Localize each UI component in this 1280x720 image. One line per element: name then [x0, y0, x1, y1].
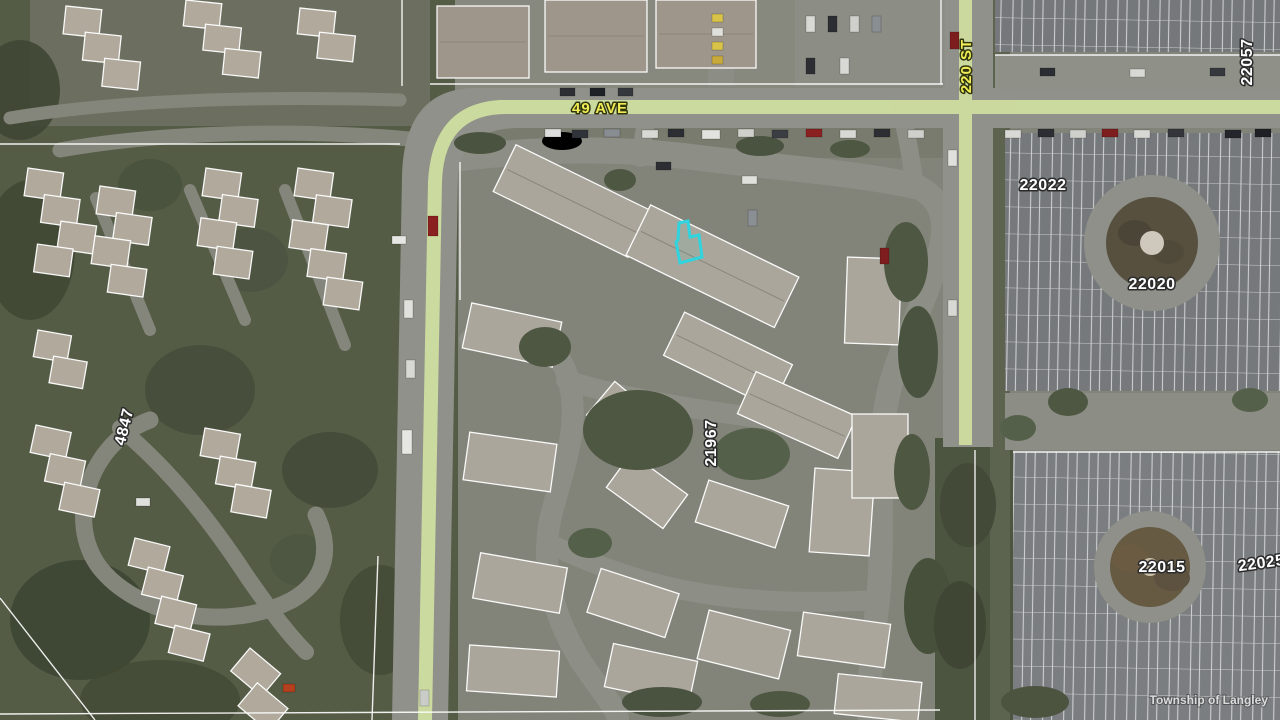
parcel-label-21967: 21967 [703, 420, 720, 467]
north-houses-layer [437, 0, 756, 78]
aerial-map-canvas[interactable]: 49 AVE 220 ST 22057 22022 22020 21967 48… [0, 0, 1280, 720]
parcel-label-22022: 22022 [1020, 177, 1067, 194]
parcel-label-22015: 22015 [1139, 559, 1186, 576]
parcel-label-22057: 22057 [1239, 39, 1256, 86]
street-label-49-ave: 49 AVE [572, 100, 628, 117]
street-label-220-st: 220 ST [958, 39, 975, 93]
aerial-map-viewport[interactable]: 49 AVE 220 ST 22057 22022 22020 21967 48… [0, 0, 1280, 720]
parcel-label-22020: 22020 [1129, 276, 1176, 293]
parking-top [795, 0, 945, 86]
map-watermark: Township of Langley [1150, 693, 1269, 707]
